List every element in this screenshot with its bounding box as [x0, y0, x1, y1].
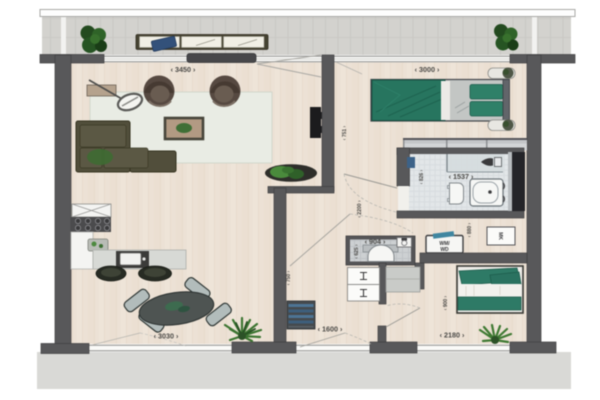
svg-text:‹ 750 ›: ‹ 750 ›: [286, 270, 292, 285]
svg-text:‹ 900 ›: ‹ 900 ›: [443, 295, 449, 310]
svg-text:WD: WD: [440, 247, 449, 253]
svg-text:‹ 3000 ›: ‹ 3000 ›: [415, 65, 440, 74]
svg-text:‹ 880 ›: ‹ 880 ›: [467, 222, 473, 237]
svg-text:‹ 1537 ›: ‹ 1537 ›: [449, 172, 474, 181]
svg-text:‹ 751 ›: ‹ 751 ›: [342, 125, 348, 140]
svg-text:‹ 1600 ›: ‹ 1600 ›: [318, 325, 343, 334]
svg-text:‹ 3030 ›: ‹ 3030 ›: [154, 332, 179, 341]
svg-text:MK: MK: [497, 232, 503, 240]
svg-text:‹ 3450 ›: ‹ 3450 ›: [171, 65, 196, 74]
svg-text:‹ 2200 ›: ‹ 2200 ›: [357, 200, 363, 218]
svg-text:‹ 625 ›: ‹ 625 ›: [354, 244, 360, 259]
svg-text:‹ 2180 ›: ‹ 2180 ›: [440, 331, 465, 340]
svg-text:‹ 904 ›: ‹ 904 ›: [365, 237, 386, 246]
svg-text:‹ 826 ›: ‹ 826 ›: [419, 169, 425, 184]
